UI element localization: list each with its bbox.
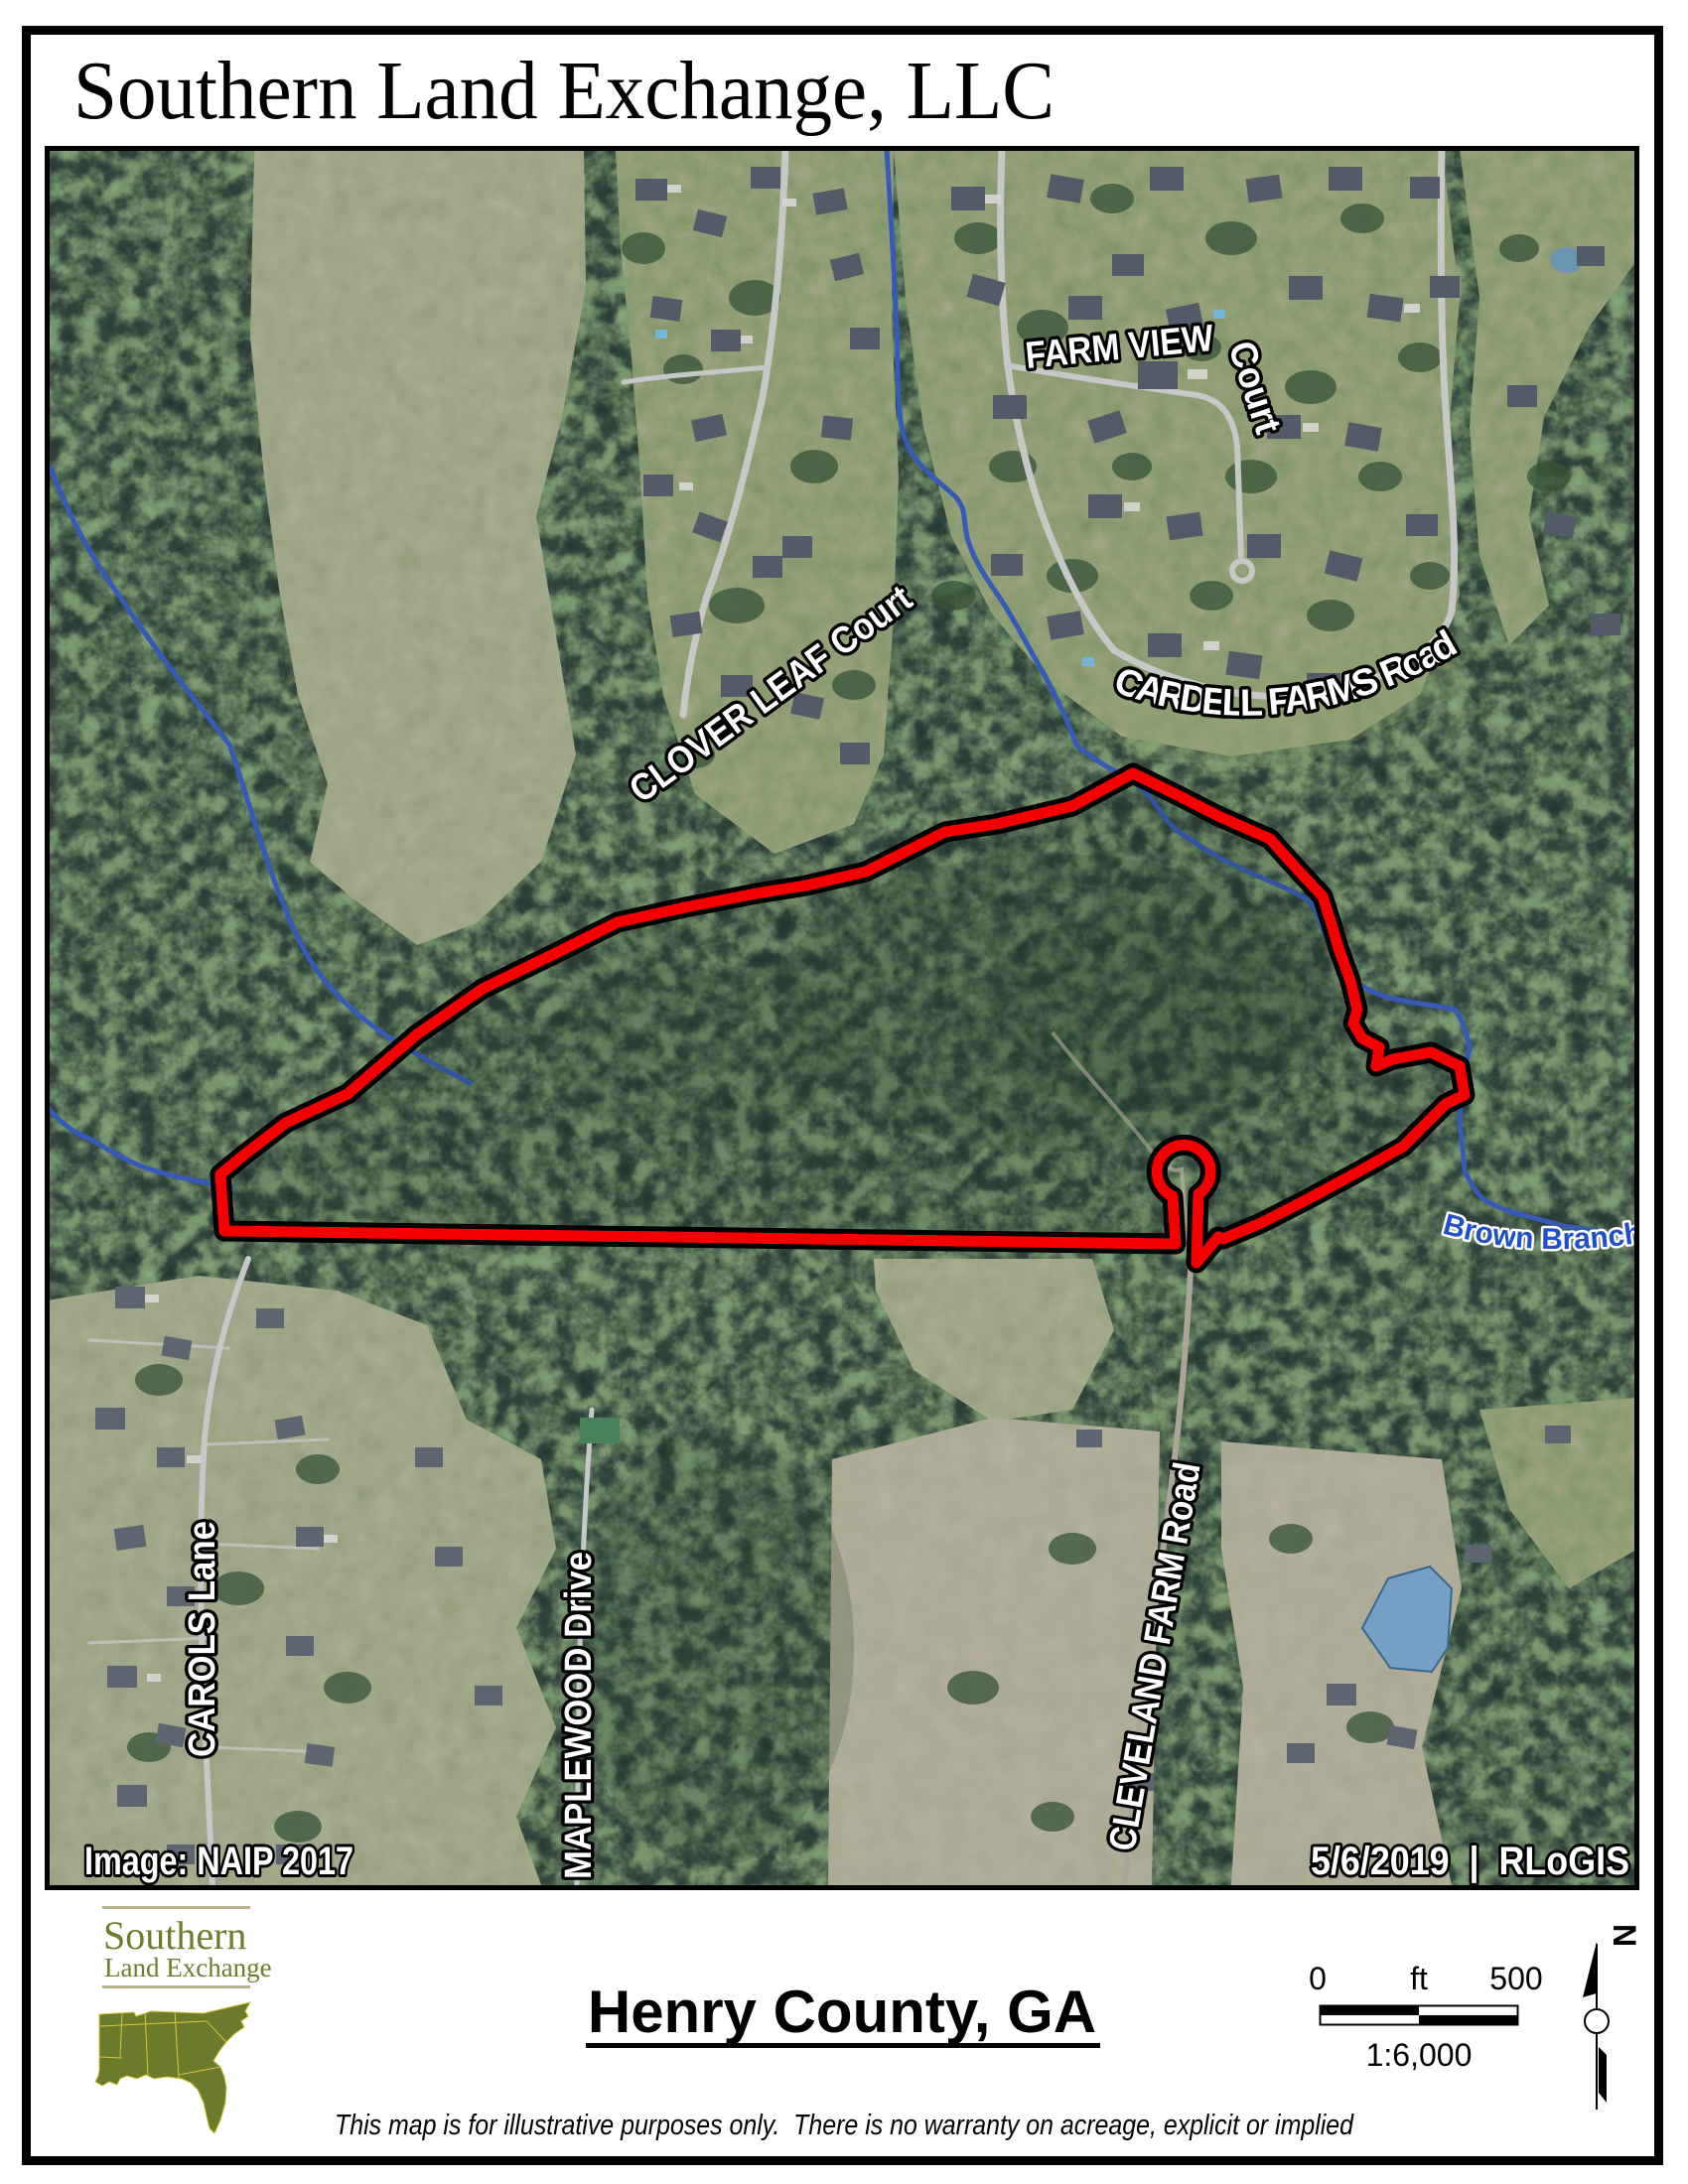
svg-text:CAROLS Lane: CAROLS Lane bbox=[182, 1521, 223, 1757]
svg-text:1:6,000: 1:6,000 bbox=[1366, 2037, 1473, 2073]
svg-text:Land Exchange: Land Exchange bbox=[104, 1953, 272, 1982]
svg-text:Southern Land Exchange, LLC: Southern Land Exchange, LLC bbox=[73, 45, 1055, 137]
svg-text:N: N bbox=[1607, 1924, 1642, 1947]
svg-text:Image: NAIP 2017: Image: NAIP 2017 bbox=[84, 1840, 353, 1883]
svg-text:Henry County, GA: Henry County, GA bbox=[588, 1979, 1096, 2045]
svg-text:0: 0 bbox=[1309, 1961, 1327, 1996]
svg-text:MAPLEWOOD Drive: MAPLEWOOD Drive bbox=[558, 1552, 600, 1879]
svg-text:This map is for illustrative p: This map is for illustrative purposes on… bbox=[335, 2110, 1354, 2141]
svg-text:Southern: Southern bbox=[103, 1913, 246, 1958]
svg-text:500: 500 bbox=[1489, 1961, 1542, 1996]
svg-text:ft: ft bbox=[1410, 1961, 1428, 1996]
svg-text:5/6/2019 | RLoGIS: 5/6/2019 | RLoGIS bbox=[1311, 1840, 1629, 1883]
